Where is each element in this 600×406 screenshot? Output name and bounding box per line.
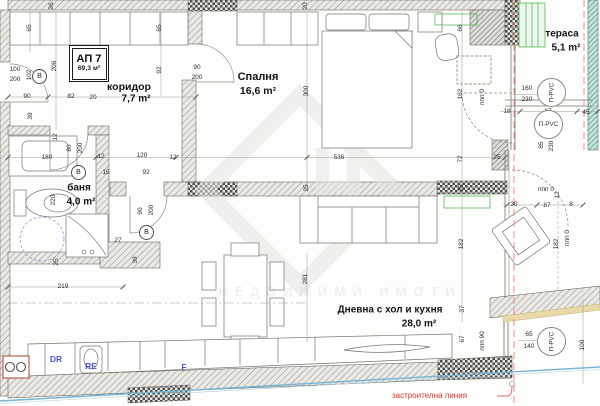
building-line-label: застроителна линия bbox=[392, 391, 467, 400]
kitchen-fridge-label: F bbox=[181, 362, 186, 372]
window-type-label: П-PVC bbox=[548, 332, 555, 352]
room-label-corridor: коридор bbox=[107, 81, 151, 93]
watermark-text: НЕДВИЖИМИ ИМОТИ bbox=[140, 284, 540, 299]
bed bbox=[322, 14, 412, 148]
dimension-label: 25 bbox=[459, 184, 466, 191]
terrace-edge-wall bbox=[588, 0, 598, 150]
dimension-label: 92 bbox=[157, 66, 164, 73]
dimension-label: 12 bbox=[53, 133, 60, 140]
dimension-label: 200 bbox=[192, 75, 203, 82]
dimension-label: 160 bbox=[522, 86, 533, 93]
dimension-label: 180 bbox=[42, 155, 53, 162]
dimension-label: 12 bbox=[97, 154, 104, 161]
dimension-label: 85 bbox=[539, 141, 546, 148]
green-marker bbox=[444, 196, 490, 208]
dimension-label: ппп 90 bbox=[480, 331, 487, 351]
dimension-label: ппп 0 bbox=[480, 89, 487, 105]
dimension-label: 100 bbox=[580, 340, 587, 351]
dimension-label: 182 bbox=[554, 239, 561, 250]
dimension-label: 18 bbox=[503, 109, 510, 116]
room-label-bedroom: Спалня bbox=[238, 71, 279, 83]
dimension-label: 72 bbox=[458, 155, 465, 162]
dimension-label: 65 bbox=[157, 24, 164, 31]
dimension-label: 90 bbox=[138, 207, 145, 214]
dimension-label: 219 bbox=[58, 284, 69, 291]
room-label-living: Дневна с хол и кухня bbox=[338, 305, 443, 316]
window-type-bubble: П-PVC bbox=[537, 78, 566, 107]
dimension-label: 87 bbox=[543, 203, 550, 210]
dimension-label: 67 bbox=[460, 335, 467, 342]
dimension-label: 25 bbox=[493, 155, 500, 162]
dimension-label: 15 bbox=[102, 170, 109, 177]
kitchen-sink-label: RE bbox=[85, 361, 97, 371]
room-area-living: 28,0 m² bbox=[402, 319, 436, 330]
door-letter-bubble: В bbox=[139, 225, 154, 240]
dimension-label: ппп 0 bbox=[565, 230, 572, 246]
dimension-label: 230 bbox=[549, 141, 556, 152]
terrace-door-arc bbox=[462, 93, 512, 143]
dimension-label: 80 bbox=[67, 144, 74, 151]
door-letter-bubble: В bbox=[71, 165, 86, 180]
window-type-bubble: П-PVC bbox=[537, 327, 566, 356]
dimension-label: 300 bbox=[304, 86, 311, 97]
dimension-label: 162 bbox=[458, 89, 465, 100]
dimension-label: 200 bbox=[149, 205, 156, 216]
dimension-label: 90 bbox=[23, 94, 30, 101]
room-area-corridor: 7,7 m² bbox=[122, 94, 151, 105]
dimension-label: 206 bbox=[52, 61, 59, 72]
dimension-label: 536 bbox=[334, 155, 345, 162]
room-area-bedroom: 16,6 m² bbox=[240, 85, 276, 97]
dimension-label: 140 bbox=[524, 344, 535, 351]
apartment-code: АП 7 bbox=[77, 53, 102, 65]
floor-plan: НЕДВИЖИМИ ИМОТИ АП 7 69,3 м² коридор 7,7… bbox=[0, 0, 600, 406]
dimension-label: 182 bbox=[459, 239, 466, 250]
dimension-label: 20 bbox=[89, 95, 96, 102]
dimension-label: 281 bbox=[303, 274, 310, 285]
dimension-label: 92 bbox=[142, 170, 149, 177]
apartment-number-box: АП 7 69,3 м² bbox=[69, 45, 109, 82]
dimension-label: 26 bbox=[49, 2, 56, 9]
dimension-label: 25 bbox=[54, 258, 61, 265]
dimension-label: 220 bbox=[51, 195, 58, 206]
shower bbox=[66, 214, 108, 257]
door-letter-bubble: В bbox=[32, 69, 47, 84]
dimension-label: 30 bbox=[510, 202, 517, 209]
kitchen-dishwasher-label: DR bbox=[50, 354, 62, 364]
dimension-label: 90 bbox=[193, 65, 200, 72]
dimension-label: 12 bbox=[169, 155, 176, 162]
wardrobe-bedroom bbox=[237, 12, 318, 45]
room-label-terrace: тераса bbox=[545, 29, 578, 40]
window-type-label: П-PVC bbox=[548, 83, 555, 103]
dimension-label: 65 bbox=[525, 332, 532, 339]
dimension-label: 39 bbox=[28, 112, 35, 119]
dimension-label: 37 bbox=[460, 305, 467, 312]
dimension-label: 8 bbox=[569, 202, 573, 209]
dimension-label: 25 bbox=[304, 184, 311, 191]
dimension-label: 66 bbox=[458, 24, 465, 31]
armchair bbox=[491, 206, 551, 266]
dimension-label: 12 bbox=[555, 191, 562, 198]
dimension-label: 120 bbox=[137, 153, 148, 160]
dimension-label: 82 bbox=[67, 94, 74, 101]
dimension-label: 65 bbox=[27, 24, 34, 31]
dimension-label: 27 bbox=[114, 238, 121, 245]
window-type-label: П-PVC bbox=[539, 121, 559, 128]
dimension-label: 39 bbox=[133, 256, 140, 263]
dimension-label: 100 bbox=[10, 67, 21, 74]
dimension-label: 200 bbox=[10, 77, 21, 84]
window-type-bubble: П-PVC bbox=[534, 110, 563, 139]
room-area-bath: 4,0 m² bbox=[67, 197, 96, 208]
dimension-label: 230 bbox=[522, 97, 533, 104]
dimension-label: 200 bbox=[78, 143, 85, 154]
terrace-bench bbox=[519, 3, 545, 47]
dimension-label: 45 bbox=[582, 110, 589, 117]
room-label-bath: баня bbox=[67, 183, 91, 194]
stove bbox=[3, 356, 29, 378]
dimension-label: 20 bbox=[303, 2, 310, 9]
room-area-terrace: 5,1 m² bbox=[552, 43, 581, 54]
nightstand bbox=[418, 12, 442, 32]
dimension-label: ппп 0 bbox=[538, 187, 554, 194]
sofa bbox=[300, 196, 437, 243]
apartment-area: 69,3 м² bbox=[78, 65, 100, 73]
label-leader bbox=[497, 387, 512, 396]
